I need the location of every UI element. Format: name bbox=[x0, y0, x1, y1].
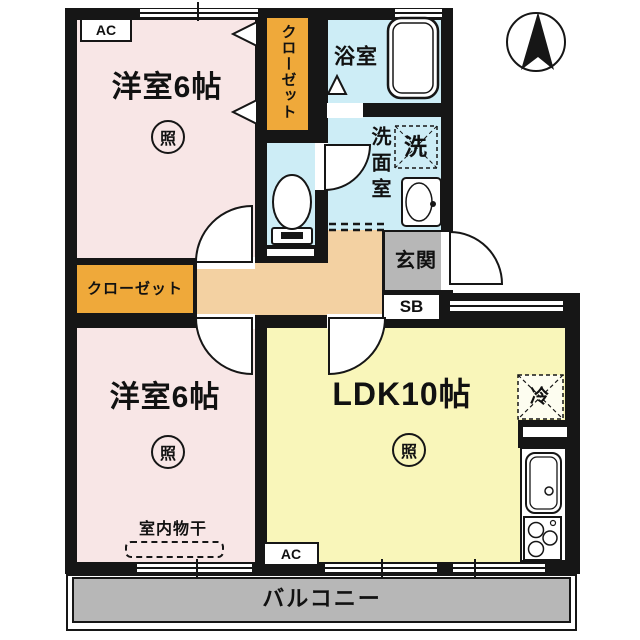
bedroom2-label: 洋室6帖 bbox=[110, 383, 221, 413]
window-bottom-bedroom2 bbox=[137, 564, 252, 572]
shoe-box-text: SB bbox=[400, 297, 424, 317]
balcony-label: バルコニー bbox=[262, 588, 382, 610]
washroom-label: 洗面室 bbox=[369, 126, 389, 204]
bath-door-gap bbox=[327, 103, 363, 118]
bedroom2-light-text: 照 bbox=[160, 440, 176, 464]
bath-label: 浴室 bbox=[334, 47, 378, 68]
floor-plan: AC AC SB bbox=[0, 0, 640, 640]
front-door-swing-icon bbox=[450, 232, 502, 284]
bedroom1-label: 洋室6帖 bbox=[112, 73, 223, 103]
compass-icon bbox=[507, 12, 565, 71]
front-door-gap bbox=[441, 232, 454, 290]
ldk-light-mark: 照 bbox=[392, 433, 426, 467]
ac-label-top-text: AC bbox=[96, 22, 116, 38]
hall-floor-upper bbox=[328, 230, 382, 263]
bedroom2-light-mark: 照 bbox=[151, 435, 185, 469]
toilet-door-slab bbox=[265, 247, 316, 258]
bedroom1-light-mark: 照 bbox=[151, 120, 185, 154]
closet-left-label: クローゼット bbox=[87, 282, 183, 297]
entrance-label: 玄関 bbox=[395, 251, 437, 271]
washroom-door-gap bbox=[315, 143, 328, 190]
window-bottom-ldk-left bbox=[325, 564, 437, 572]
window-right-band bbox=[450, 301, 563, 311]
ac-label-bottom-text: AC bbox=[281, 546, 301, 562]
closet-top-label: クローゼット bbox=[281, 24, 296, 120]
ldk-light-text: 照 bbox=[401, 438, 417, 462]
wall-base-right-band bbox=[440, 293, 580, 333]
bedroom1-door-gap bbox=[197, 257, 255, 269]
bedroom1-light-text: 照 bbox=[160, 125, 176, 149]
indoor-drying-label: 室内物干 bbox=[139, 522, 207, 538]
window-bottom-ldk-right bbox=[453, 564, 545, 572]
toilet-floor bbox=[267, 143, 315, 245]
ldk-door-gap bbox=[327, 314, 383, 329]
washer-label: 洗 bbox=[404, 136, 428, 159]
indoor-drying-box bbox=[125, 541, 224, 558]
shoe-box-label: SB bbox=[382, 293, 441, 321]
window-top-bath bbox=[395, 9, 442, 17]
ac-label-bottom: AC bbox=[263, 542, 319, 566]
hall-floor-main bbox=[197, 263, 382, 315]
fridge-label: 冷 bbox=[530, 388, 550, 407]
window-top-bedroom1 bbox=[140, 9, 258, 17]
ac-label-top: AC bbox=[80, 18, 132, 42]
bedroom2-door-gap bbox=[197, 314, 255, 329]
ldk-label: LDK10帖 bbox=[332, 378, 471, 410]
